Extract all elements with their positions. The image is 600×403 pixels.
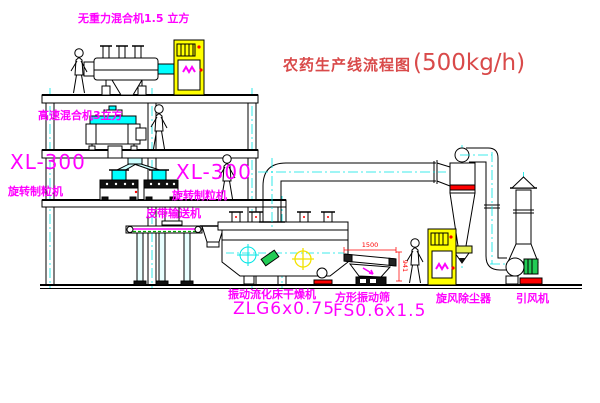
diagram-title-cn: 农药生产线流程图 (283, 54, 411, 75)
sieve-height-dim: 941 (401, 260, 409, 272)
fluid-bed-dryer (218, 212, 348, 284)
label-cyclone: 旋风除尘器 (436, 293, 491, 304)
induced-draft-fan (506, 258, 542, 284)
label-gravity-mixer: 无重力混合机1.5 立方 (78, 13, 189, 24)
diagram-title: 农药生产线流程图 (500kg/h) (283, 50, 525, 76)
label-granulator-left-name: 旋转制粒机 (8, 186, 63, 197)
flow-diagram-canvas: 1500 941 农药生产线流程图 (500kg/h) 无重力混合机1.5 立方… (0, 0, 600, 403)
label-sieve-model: FS0.6x1.5 (333, 303, 426, 320)
diagram-title-capacity: (500kg/h) (413, 50, 525, 76)
mixer-inlet-ports (100, 46, 144, 58)
exhaust-duct (258, 158, 450, 230)
label-granulator-mid-name: 旋转制粒机 (172, 190, 227, 201)
label-dryer-model: ZLG6x0.75 (233, 301, 335, 318)
gravity-mixer (84, 46, 184, 95)
label-granulator-left-model: XL-300 (10, 152, 86, 172)
label-high-speed-mixer: 高速混合机3立方 (38, 110, 123, 121)
control-cabinet-2 (428, 229, 456, 285)
worker-second-floor (151, 105, 167, 149)
label-belt-conveyor: 皮带输送机 (146, 208, 201, 219)
sieve-length-dim: 1500 (362, 241, 379, 249)
granulator-left (100, 170, 138, 200)
vibrating-sieve: 1500 941 (344, 241, 409, 285)
label-granulator-mid-model: XL-300 (176, 162, 252, 182)
exhaust-stack (508, 172, 538, 262)
label-fan: 引风机 (516, 293, 549, 304)
control-cabinet-1 (174, 40, 204, 95)
